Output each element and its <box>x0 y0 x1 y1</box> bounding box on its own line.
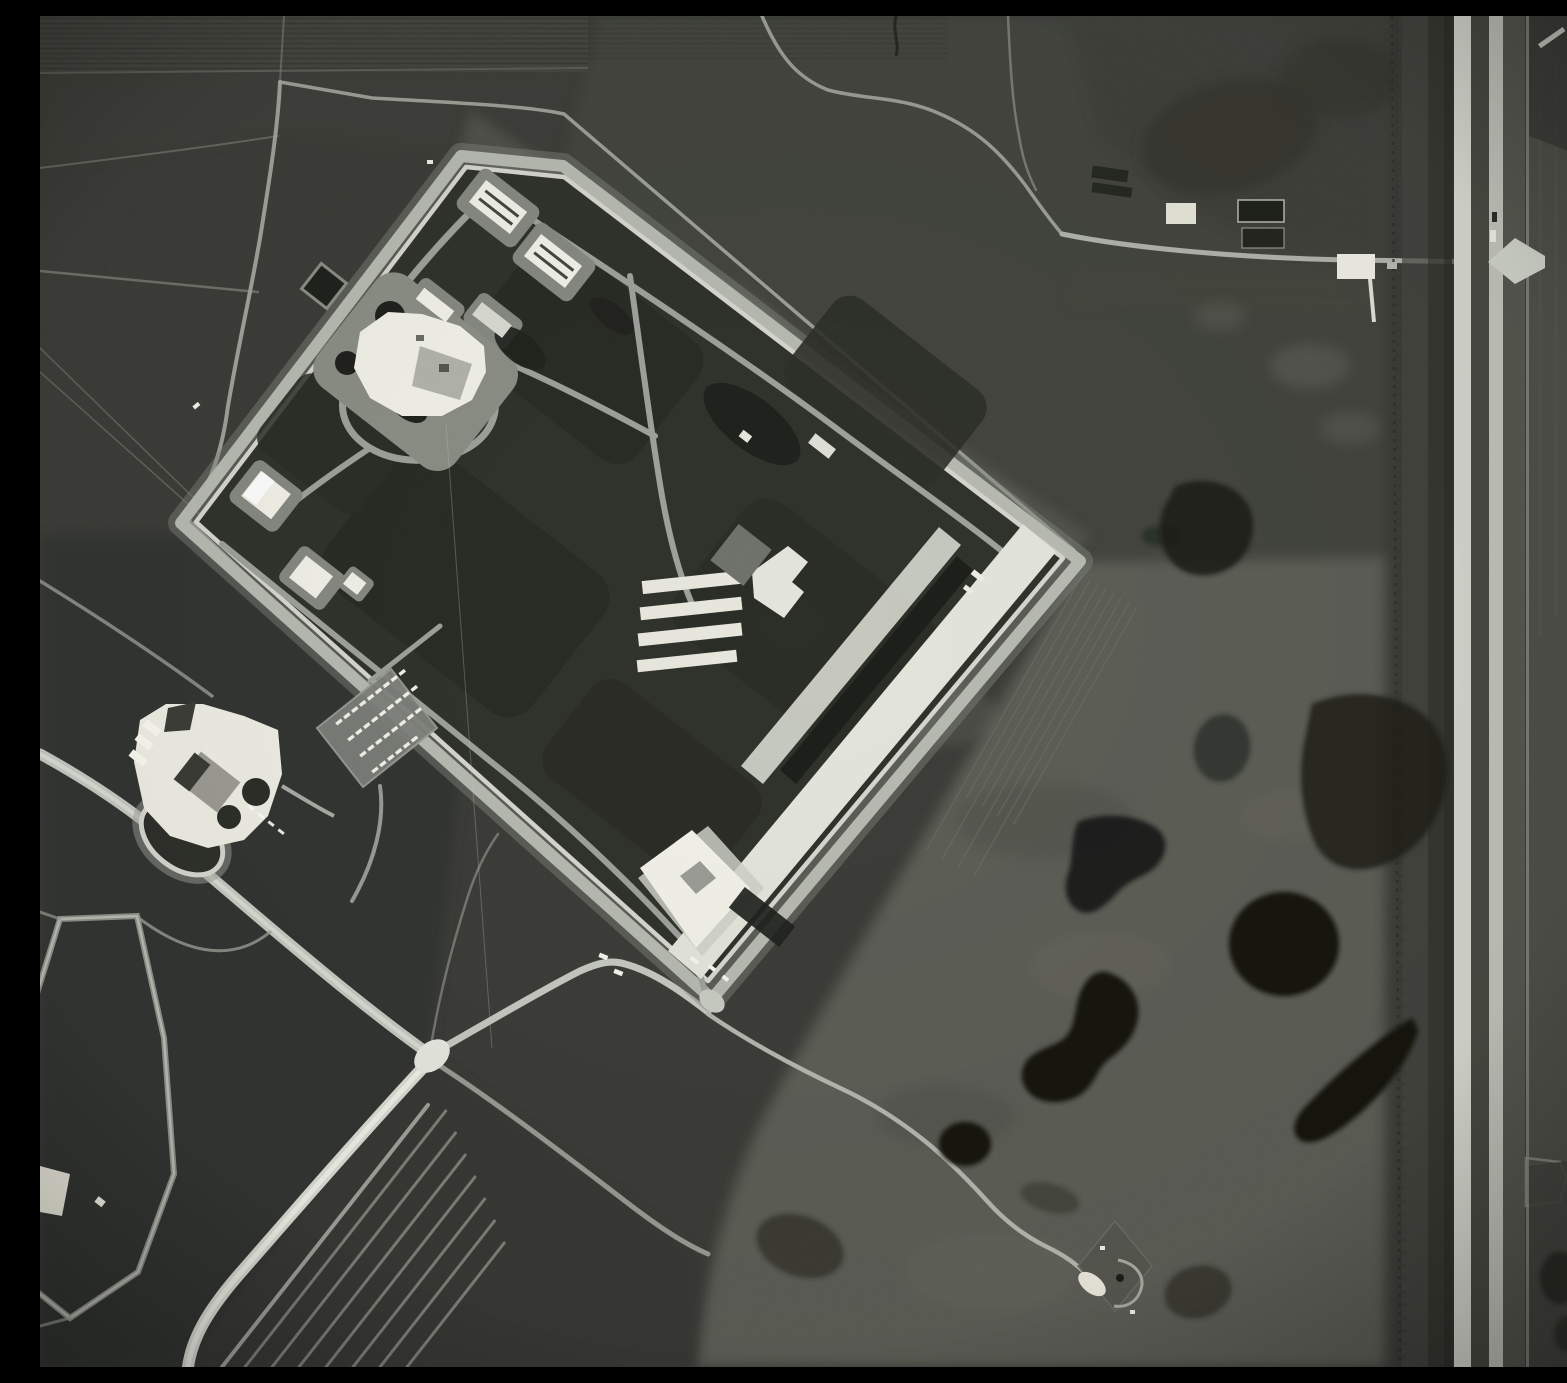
aerial-scene <box>40 16 1567 1367</box>
film-grain <box>40 16 1567 1367</box>
satellite-photo <box>40 16 1567 1367</box>
